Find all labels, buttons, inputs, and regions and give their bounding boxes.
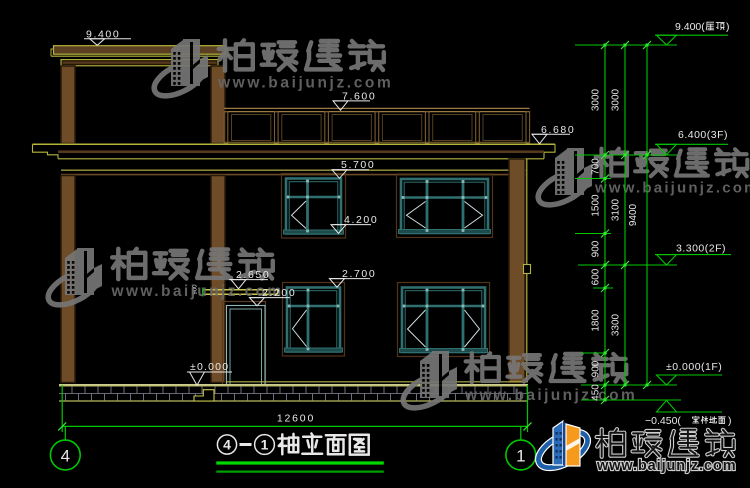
svg-text:www.baijunjz.com: www.baijunjz.com <box>594 180 750 197</box>
svg-text:1: 1 <box>516 447 525 466</box>
svg-text:−0.450(: −0.450( <box>645 415 681 427</box>
svg-text:±0.000: ±0.000 <box>190 361 229 373</box>
svg-text:9400: 9400 <box>628 203 639 226</box>
svg-text:4: 4 <box>223 437 231 453</box>
svg-text:700: 700 <box>591 158 602 175</box>
svg-text:www.baijunjz.com: www.baijunjz.com <box>217 75 393 92</box>
svg-text:4: 4 <box>61 447 70 466</box>
svg-text:12600: 12600 <box>277 413 315 425</box>
svg-text:1: 1 <box>261 437 269 453</box>
svg-text:3000: 3000 <box>611 88 622 111</box>
svg-text:3000: 3000 <box>591 88 602 111</box>
svg-text:600: 600 <box>591 268 602 285</box>
svg-text:3300: 3300 <box>611 313 622 336</box>
svg-text:3100: 3100 <box>611 198 622 221</box>
svg-text:900: 900 <box>591 360 602 377</box>
svg-text:www.baijunjz.com: www.baijunjz.com <box>464 387 637 404</box>
svg-text:±0.000(1F): ±0.000(1F) <box>666 361 722 373</box>
svg-text:1500: 1500 <box>591 194 602 217</box>
svg-text:www.baijunjz.com: www.baijunjz.com <box>596 458 737 474</box>
svg-text:3.300(2F): 3.300(2F) <box>676 243 726 255</box>
svg-text:): ) <box>726 21 730 33</box>
svg-text:900: 900 <box>591 240 602 257</box>
svg-text:): ) <box>728 415 732 427</box>
svg-text:1800: 1800 <box>591 309 602 332</box>
svg-text:450: 450 <box>591 384 602 401</box>
svg-text:9.400(: 9.400( <box>675 21 705 33</box>
svg-text:6.400(3F): 6.400(3F) <box>678 129 728 141</box>
